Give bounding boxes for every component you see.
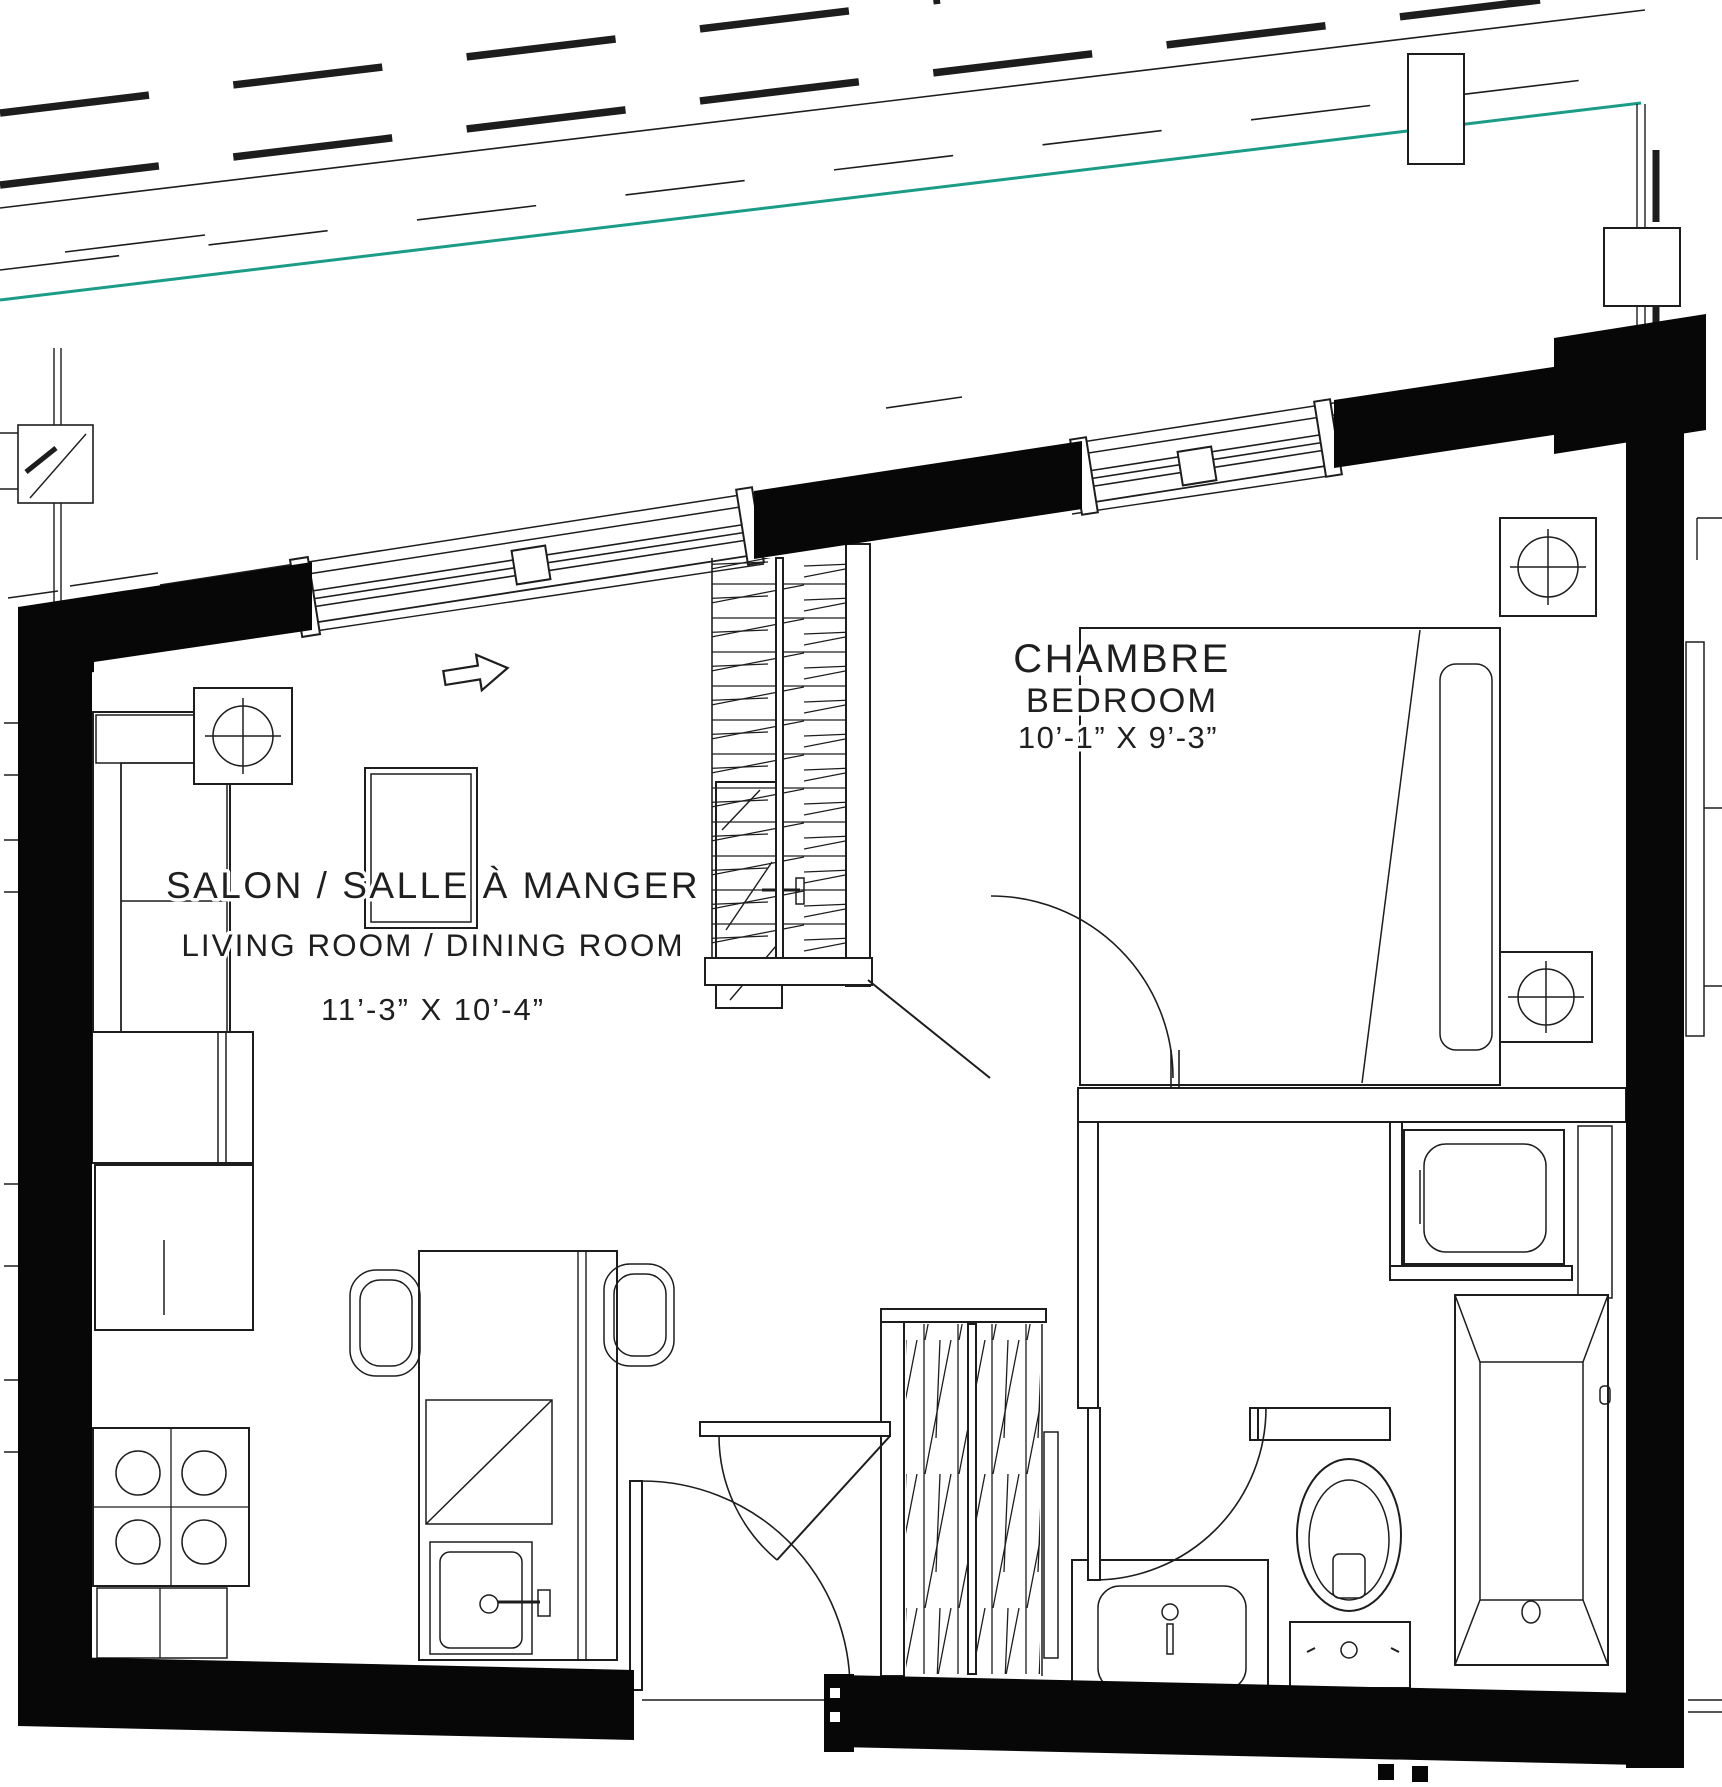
window-bedroom	[1070, 399, 1342, 515]
living-title: SALON / SALLE À MANGER	[166, 865, 700, 906]
wall-stub	[1378, 1764, 1394, 1780]
closet-wall	[846, 544, 870, 986]
laundry-cabinet	[1578, 1126, 1612, 1298]
bedroom-dimensions: 10’-1” X 9’-3”	[1018, 720, 1218, 755]
door-leaf	[1088, 1408, 1100, 1580]
setback-dashed-line	[0, 73, 1641, 270]
entry-closet	[881, 1309, 1058, 1676]
living-dimensions: 11’-3” X 10’-4”	[321, 992, 545, 1027]
kitchen-counter-lower	[97, 1588, 227, 1658]
entry-jamb-slot	[830, 1712, 840, 1722]
neighbour-window-strip	[1686, 642, 1704, 1036]
entry-jamb-slot	[830, 1688, 840, 1698]
bathroom-left-wall	[1078, 1122, 1098, 1408]
balcony-dash-mid	[886, 397, 962, 408]
toilet	[1290, 1459, 1410, 1688]
kitchen-counter-upper	[92, 1032, 253, 1163]
neighbour-column-box	[1408, 54, 1464, 164]
exterior-wall-top-right	[1334, 366, 1560, 468]
wall-stub	[1412, 1766, 1428, 1782]
door-leaf	[868, 980, 990, 1078]
closet-rod	[776, 558, 783, 958]
neighbour-fixture-box	[18, 425, 93, 503]
living-room-label: SALON / SALLE À MANGER LIVING ROOM / DIN…	[166, 865, 700, 1027]
exterior-wall-bottom-left	[18, 1656, 634, 1740]
hall-wall	[700, 1422, 890, 1436]
exterior-wall-left	[18, 660, 92, 1724]
window-living	[290, 487, 764, 637]
balcony-dash-left-2	[70, 573, 158, 586]
exterior-wall-bottom-right	[838, 1675, 1684, 1766]
exterior-wall-right	[1626, 424, 1684, 1768]
laundry-niche	[1390, 1122, 1612, 1298]
door-leaf	[630, 1481, 642, 1690]
door-leaf	[777, 1436, 890, 1560]
curb-line	[0, 10, 1645, 208]
door-jamb	[1250, 1408, 1258, 1440]
exterior-wall-mid	[754, 441, 1082, 559]
balcony-dash-left-1	[8, 591, 58, 598]
bedroom-subtitle: BEDROOM	[1026, 682, 1218, 720]
hall-door	[719, 1436, 890, 1560]
setback-short-dash	[65, 235, 205, 252]
door-swing-arc	[1094, 1408, 1266, 1580]
bathroom-door	[1088, 1408, 1266, 1580]
entry-arrow	[442, 650, 511, 696]
door-swing-arc	[642, 1481, 850, 1689]
nightstand-bottom	[1500, 952, 1592, 1042]
street-centerline-upper	[0, 0, 940, 113]
nightstand-top	[1500, 518, 1596, 616]
entry-door	[630, 1481, 850, 1700]
street-centerline	[0, 0, 1540, 185]
kitchen-fridge	[95, 1165, 253, 1330]
property-line	[0, 103, 1641, 300]
right-arrow-icon	[442, 650, 511, 696]
service-panel-box	[1604, 228, 1680, 306]
bathroom-front-wall	[1258, 1408, 1390, 1440]
bedroom-label: CHAMBRE BEDROOM 10’-1” X 9’-3”	[1013, 637, 1231, 755]
washer	[1404, 1130, 1564, 1264]
closet-bedroom	[705, 544, 872, 986]
bedroom-bathroom-wall	[1078, 1088, 1626, 1122]
kitchen-stove	[93, 1428, 249, 1586]
bathtub	[1455, 1295, 1610, 1665]
floor-plan-canvas: SALON / SALLE À MANGER LIVING ROOM / DIN…	[0, 0, 1722, 1787]
closet-rod	[968, 1324, 976, 1674]
window-mullion	[512, 546, 551, 585]
living-subtitle: LIVING ROOM / DINING ROOM	[181, 927, 684, 963]
window-mullion	[1178, 447, 1217, 486]
kitchen-island	[419, 1251, 617, 1660]
dining-chair-left	[350, 1270, 420, 1376]
bedroom-title: CHAMBRE	[1013, 637, 1231, 681]
closet-pilaster	[1044, 1432, 1058, 1658]
side-table-lamp	[194, 688, 292, 784]
door-swing-arc	[719, 1436, 777, 1560]
closet-wall	[705, 958, 872, 985]
